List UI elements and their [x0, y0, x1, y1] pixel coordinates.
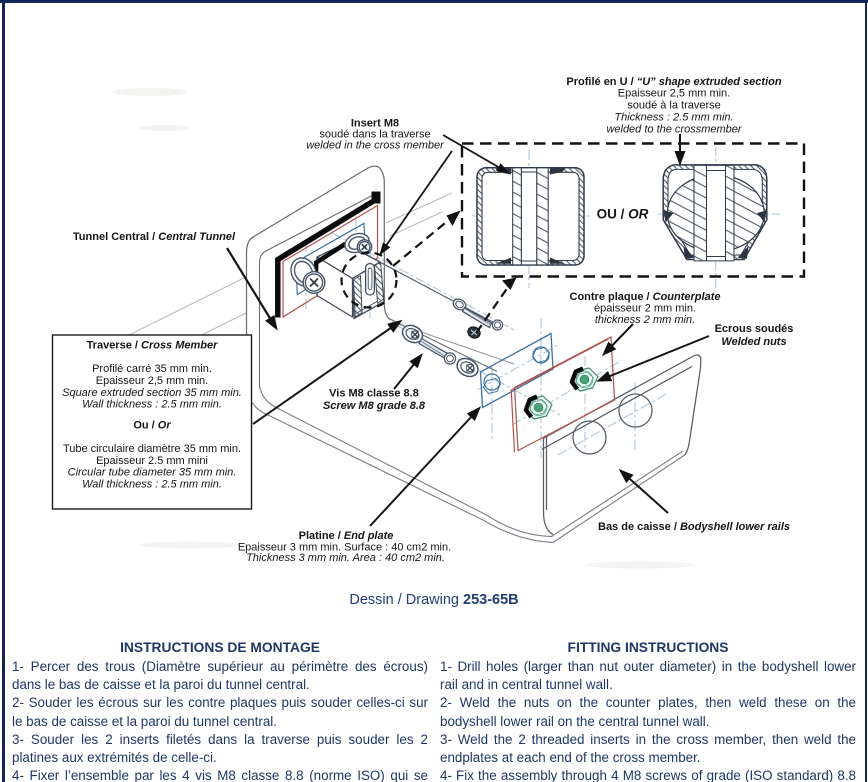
svg-text:épaisseur 2 mm min.: épaisseur 2 mm min. [594, 303, 696, 315]
svg-text:Thickness 3 mm min. Area : 40: Thickness 3 mm min. Area : 40 cm2 min. [246, 552, 445, 564]
svg-text:Epaisseur 2,5 mm min.: Epaisseur 2,5 mm min. [96, 375, 208, 387]
svg-text:Profilé en U / “U” shape extru: Profilé en U / “U” shape extruded sectio… [566, 76, 781, 88]
svg-text:Contre plaque / Counterplate: Contre plaque / Counterplate [570, 291, 721, 303]
svg-text:Epaisseur 2,5 mm min.: Epaisseur 2,5 mm min. [618, 88, 730, 100]
svg-text:Ou / Or: Ou / Or [133, 420, 171, 432]
svg-text:Vis M8 classe 8.8: Vis M8 classe 8.8 [329, 388, 419, 400]
svg-text:Bas de caisse / Bodyshell lowe: Bas de caisse / Bodyshell lower rails [598, 521, 790, 533]
svg-text:Epaisseur 2.5 mm mini: Epaisseur 2.5 mm mini [96, 455, 208, 467]
svg-text:Tube circulaire diamètre 35 mm: Tube circulaire diamètre 35 mm min. [63, 443, 241, 455]
svg-text:soudé à la traverse: soudé à la traverse [627, 100, 721, 112]
svg-text:Ecrous soudés: Ecrous soudés [715, 323, 794, 335]
svg-text:Traverse / Cross Member: Traverse / Cross Member [87, 340, 219, 352]
svg-text:welded in the cross member: welded in the cross member [306, 140, 445, 152]
svg-text:Wall thickness : 2.5 mm min.: Wall thickness : 2.5 mm min. [82, 399, 222, 411]
svg-text:Welded nuts: Welded nuts [721, 336, 786, 348]
svg-text:Square extruded section 35 mm: Square extruded section 35 mm min. [62, 387, 242, 399]
svg-text:welded to the crossmember: welded to the crossmember [606, 124, 742, 136]
svg-text:Tunnel Central / Central Tunne: Tunnel Central / Central Tunnel [73, 231, 236, 243]
svg-text:Thickness : 2.5 mm min.: Thickness : 2.5 mm min. [614, 112, 733, 124]
svg-text:Platine / End plate: Platine / End plate [299, 530, 394, 542]
svg-text:thickness 2 mm min.: thickness 2 mm min. [595, 314, 695, 326]
svg-text:Profilé carré 35 mm min.: Profilé carré 35 mm min. [92, 363, 212, 375]
svg-text:OU / OR: OU / OR [597, 207, 649, 222]
svg-text:Circular tube diameter 35 mm m: Circular tube diameter 35 mm min. [68, 467, 237, 479]
svg-text:Screw M8 grade 8.8: Screw M8 grade 8.8 [323, 400, 426, 412]
svg-text:Wall thickness : 2.5 mm min.: Wall thickness : 2.5 mm min. [82, 479, 222, 491]
